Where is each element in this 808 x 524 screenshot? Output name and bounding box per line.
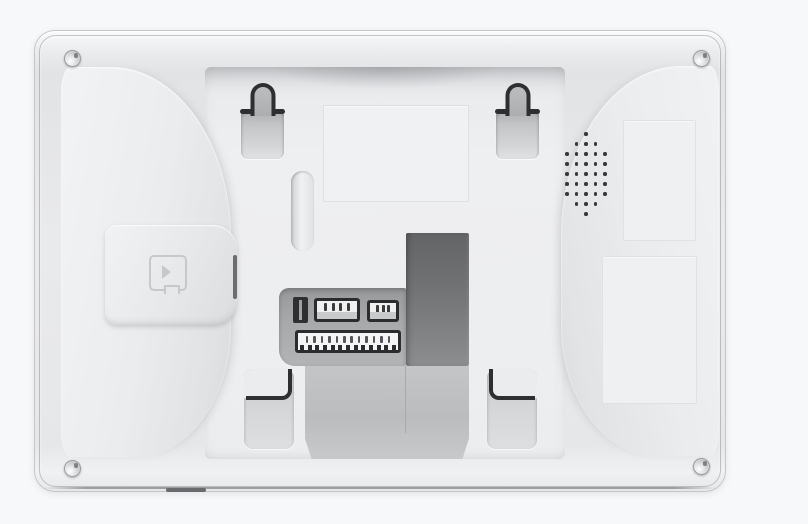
bottom-vent-slit (166, 488, 206, 492)
device-rear-housing (34, 30, 726, 492)
inner-rim-line (39, 35, 721, 487)
bottom-seam-line (45, 487, 715, 489)
product-image (0, 0, 808, 524)
